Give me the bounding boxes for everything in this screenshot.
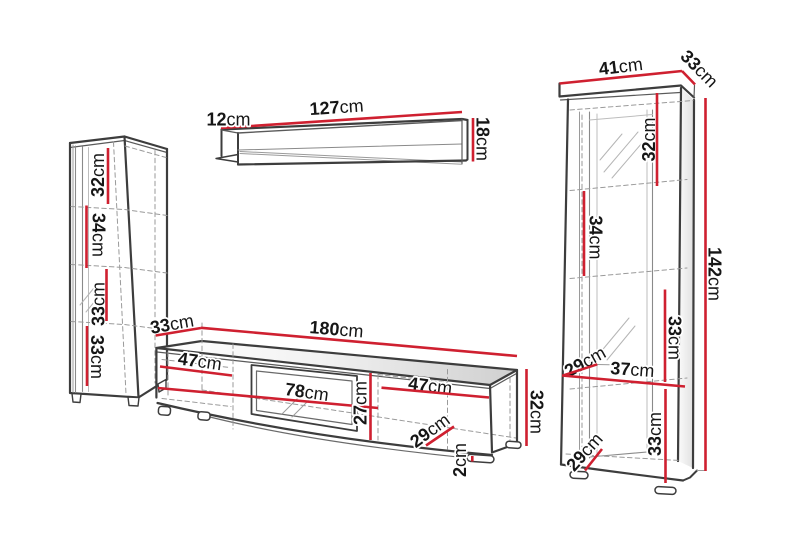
- svg-text:33cm: 33cm: [645, 412, 665, 456]
- svg-text:32cm: 32cm: [527, 390, 547, 434]
- svg-text:33cm: 33cm: [87, 335, 107, 379]
- svg-text:27cm: 27cm: [351, 381, 371, 425]
- svg-text:34cm: 34cm: [89, 213, 109, 257]
- svg-text:127cm: 127cm: [309, 95, 364, 119]
- svg-text:18cm: 18cm: [473, 117, 493, 161]
- svg-text:33cm: 33cm: [665, 316, 685, 360]
- svg-text:142cm: 142cm: [705, 247, 725, 301]
- svg-text:34cm: 34cm: [586, 215, 606, 259]
- svg-text:2cm: 2cm: [450, 443, 470, 477]
- svg-text:37cm: 37cm: [610, 358, 655, 381]
- svg-text:32cm: 32cm: [88, 153, 108, 197]
- svg-text:12cm: 12cm: [206, 109, 250, 129]
